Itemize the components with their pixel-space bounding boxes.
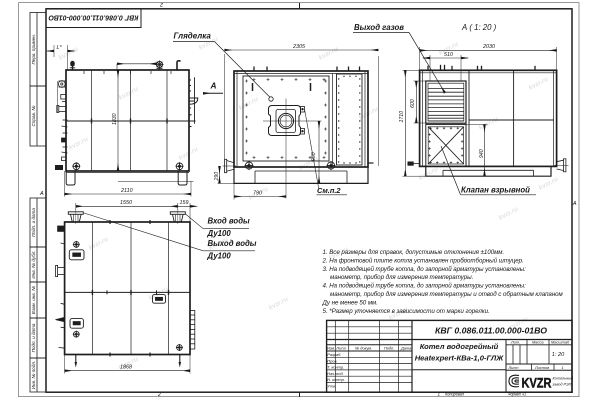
svg-text:Справ. №: Справ. № (31, 106, 36, 127)
svg-text:2030: 2030 (482, 44, 495, 50)
svg-text:Изм.: Изм. (327, 346, 335, 351)
svg-text:Масштаб: Масштаб (551, 340, 570, 345)
svg-text:Перв. примен.: Перв. примен. (31, 34, 36, 65)
svg-text:Т. контр.: Т. контр. (327, 365, 344, 370)
svg-text:940: 940 (479, 149, 485, 158)
svg-text:2305: 2305 (292, 44, 306, 50)
svg-text:завод РЭП: завод РЭП (552, 383, 572, 387)
svg-text:Масса: Масса (532, 340, 544, 345)
svg-text:Ду не менее 50 мм.: Ду не менее 50 мм. (322, 299, 378, 306)
svg-text:Подп. и дата: Подп. и дата (31, 323, 36, 352)
svg-text:1550: 1550 (120, 200, 132, 206)
svg-text:3. На подводящей трубе котла,: 3. На подводящей трубе котла, до запорно… (323, 266, 527, 273)
svg-text:2: 2 (157, 392, 161, 398)
svg-text:Разраб.: Разраб. (327, 352, 341, 357)
svg-text:600: 600 (410, 99, 416, 108)
svg-text:Клапан взрывной: Клапан взрывной (461, 186, 530, 195)
svg-text:5. *Размер уточняется в зависи: 5. *Размер уточняется в зависимости от м… (323, 308, 490, 315)
svg-text:790: 790 (253, 190, 262, 196)
svg-text:L*: L* (57, 45, 63, 51)
svg-text:Выход газов: Выход газов (354, 23, 404, 32)
svg-text:2: 2 (160, 1, 164, 7)
svg-text:1: 1 (438, 392, 441, 397)
svg-text:Нач.отд.: Нач.отд. (327, 371, 343, 376)
svg-text:См.п.2: См.п.2 (317, 186, 341, 195)
svg-text:4. На подводящей трубе котла,: 4. На подводящей трубе котла, до запорно… (323, 283, 527, 290)
svg-text:1: 20: 1: 20 (552, 352, 565, 358)
svg-text:290: 290 (214, 172, 220, 182)
svg-text:1830: 1830 (112, 113, 118, 125)
svg-text:КВГ 0.086.011.00.000-01ВО: КВГ 0.086.011.00.000-01ВО (435, 325, 548, 335)
svg-text:159: 159 (180, 200, 189, 206)
svg-text:2110: 2110 (120, 188, 133, 194)
svg-text:1710: 1710 (399, 111, 405, 123)
svg-text:Взам. инв. №: Взам. инв. № (31, 286, 36, 314)
svg-text:КВГ 0.086.011.00.000-01ВО: КВГ 0.086.011.00.000-01ВО (48, 13, 138, 22)
svg-text:Лист: Лист (335, 346, 347, 351)
svg-text:Утв.: Утв. (327, 384, 336, 389)
svg-text:Выход воды: Выход воды (208, 239, 257, 248)
svg-text:1: 1 (562, 365, 564, 370)
svg-text:Heatexpert-КВа-1,0-ГЛЖ: Heatexpert-КВа-1,0-ГЛЖ (415, 353, 505, 362)
svg-text:А: А (210, 80, 217, 90)
svg-text:№ докум.: № докум. (355, 346, 372, 351)
svg-text:Гляделка: Гляделка (174, 32, 212, 41)
svg-text:Котельный: Котельный (553, 377, 575, 381)
svg-text:Формат А3: Формат А3 (508, 392, 526, 397)
svg-text:Инв. № подл.: Инв. № подл. (31, 361, 36, 390)
svg-text:А: А (572, 201, 577, 207)
svg-text:2. На фронтовой плите котла ус: 2. На фронтовой плите котла установлен п… (322, 257, 524, 264)
svg-text:Пров.: Пров. (327, 358, 337, 363)
svg-text:Лит.: Лит. (510, 340, 520, 345)
svg-text:Инв. № дубл.: Инв. № дубл. (31, 250, 36, 278)
svg-text:Подп.: Подп. (384, 346, 394, 351)
svg-text:А: А (39, 191, 44, 197)
svg-text:950: 950 (311, 152, 317, 161)
svg-text:510: 510 (444, 52, 453, 58)
svg-text:Ду100: Ду100 (207, 252, 232, 261)
svg-text:А ( 1: 20 ): А ( 1: 20 ) (461, 23, 497, 32)
svg-text:манометр, прибор для измерения: манометр, прибор для измерения температу… (330, 274, 473, 281)
svg-text:KVZR: KVZR (522, 375, 552, 391)
svg-text:Н. контр.: Н. контр. (327, 377, 345, 382)
svg-text:Дата: Дата (400, 346, 412, 351)
svg-text:1868: 1868 (120, 365, 132, 371)
svg-text:Подп. и дата: Подп. и дата (31, 208, 36, 237)
svg-text:Котел водогрейный: Котел водогрейный (420, 342, 499, 351)
svg-text:манометр, прибор для измерения: манометр, прибор для измерения температу… (330, 291, 564, 298)
svg-text:Лист: Лист (508, 365, 520, 370)
svg-text:Листов: Листов (534, 365, 549, 370)
svg-text:Вход воды: Вход воды (208, 216, 251, 225)
svg-text:Копировал: Копировал (445, 392, 464, 397)
svg-text:1. Все размеры для справок, до: 1. Все размеры для справок, допустимые о… (323, 249, 505, 256)
svg-text:Ду100: Ду100 (207, 229, 232, 238)
